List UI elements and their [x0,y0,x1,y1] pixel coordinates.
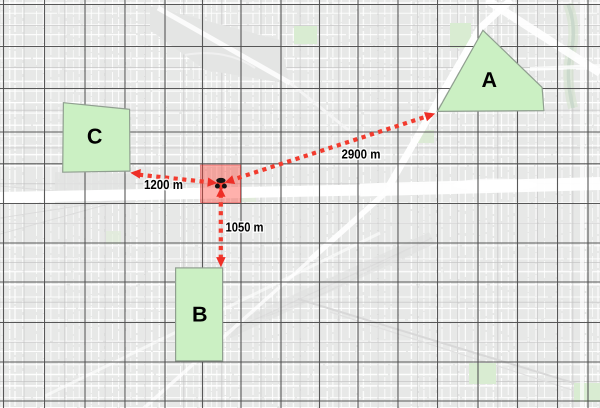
svg-text:C: C [87,125,103,149]
svg-text:1050 m: 1050 m [226,219,264,234]
svg-text:2900 m: 2900 m [342,147,381,162]
svg-text:B: B [192,302,208,326]
svg-text:1200 m: 1200 m [144,177,183,192]
svg-text:A: A [482,68,498,92]
